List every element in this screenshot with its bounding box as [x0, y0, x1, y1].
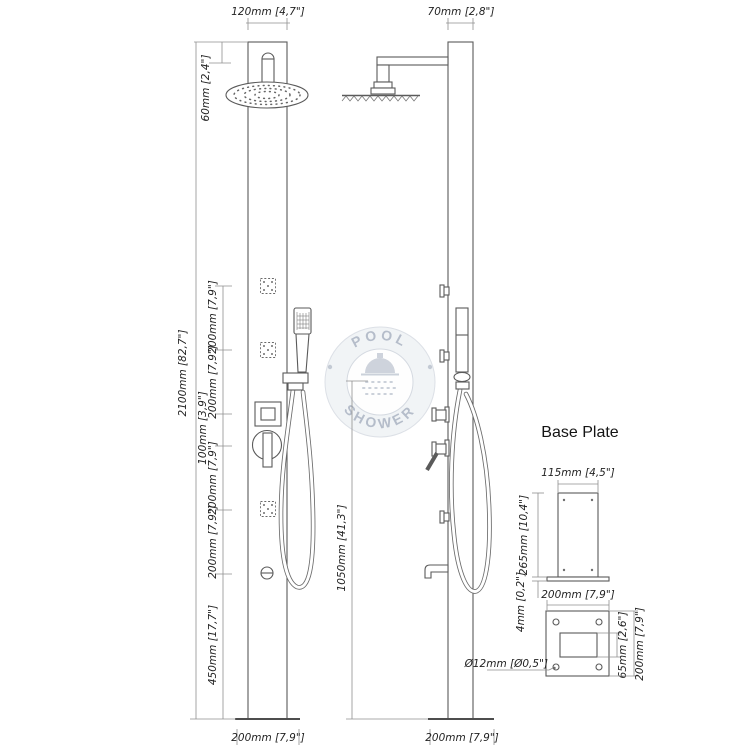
rain-shower-head-side [342, 57, 448, 101]
bp-column-height-label: 265mm [10,4"] [518, 495, 530, 575]
body-jet-side-3 [440, 511, 449, 523]
watermark-dot-right [428, 365, 432, 369]
body-jet-3 [261, 502, 276, 517]
front-width-label: 120mm [4,7"] [231, 6, 305, 18]
watermark-dot-left [328, 365, 332, 369]
base-plate-title: Base Plate [541, 424, 618, 441]
shower-panel-drawing: POOL SHOWER [0, 0, 750, 750]
segment-label-1: 200mm [7,9"] [207, 280, 219, 354]
side-base-depth-label: 200mm [7,9"] [425, 732, 499, 744]
rain-shower-head [226, 53, 308, 108]
head-drop-label: 60mm [2,4"] [200, 55, 212, 122]
bp-plate-width-label: 200mm [7,9"] [541, 589, 615, 601]
bp-cutout-height-label: 65mm [2,6"] [617, 612, 629, 679]
segment-label-4: 200mm [7,9"] [207, 441, 219, 515]
body-jet-2 [261, 343, 276, 358]
water-spout-side [425, 565, 448, 578]
bp-plate-depth-label: 200mm [7,9"] [634, 607, 646, 681]
front-base-width-label: 200mm [7,9"] [231, 732, 305, 744]
body-jet-1 [261, 279, 276, 294]
total-height-label: 2100mm [82,7"] [177, 330, 189, 417]
pool-shower-watermark: POOL SHOWER [325, 327, 435, 437]
body-jet-side-1 [440, 285, 449, 297]
bp-column-width-label: 115mm [4,5"] [541, 467, 615, 479]
technical-drawing-page: POOL SHOWER [0, 0, 750, 750]
base-plate-plan [546, 611, 609, 676]
mixer-lever-side [427, 440, 449, 470]
side-depth-label: 70mm [2,8"] [428, 6, 495, 18]
hand-shower-height-label: 1050mm [41,3"] [336, 505, 348, 592]
shower-column-front [248, 42, 287, 719]
hose-outlet [261, 567, 273, 579]
hand-shower-holder [283, 373, 308, 383]
segment-label-6: 450mm [17,7"] [207, 605, 219, 685]
segment-label-5: 200mm [7,9"] [207, 505, 219, 579]
bp-hole-diameter-label: Ø12mm [Ø0,5"] [464, 658, 548, 670]
diverter-knob-side [432, 407, 449, 422]
bp-plate-thickness-label: 4mm [0,2"] [515, 572, 527, 632]
base-plate-section: Base Plate 115mm [4,5"] 265mm [10,4"] 4m… [464, 424, 646, 681]
body-jet-side-2 [440, 350, 449, 362]
front-view: 120mm [4,7"] 60mm [2,4"] 2100mm [82,7"] … [177, 6, 313, 745]
base-plate-profile [547, 493, 609, 581]
